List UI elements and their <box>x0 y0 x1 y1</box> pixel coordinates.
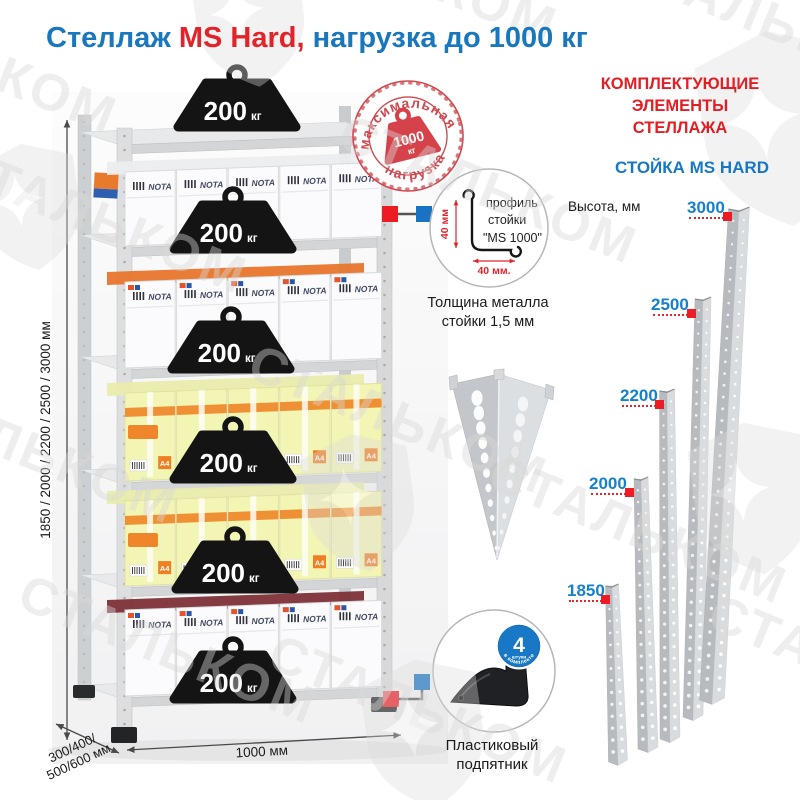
weight-value: 200 <box>200 668 243 698</box>
paper-box-yellow: A4 <box>280 385 330 475</box>
paper-box-white: NOTA <box>280 274 330 362</box>
stand-post <box>634 477 658 753</box>
paper-box-white: NOTA <box>125 170 175 246</box>
rack-illustration: NOTANOTANOTANOTANOTANOTANOTANOTANOTANOTA… <box>0 0 800 800</box>
box-brand-text: NOTA <box>251 177 275 188</box>
paper-box-white: NOTA <box>331 600 381 688</box>
paper-box-yellow: A4 <box>331 383 381 473</box>
paper-box-yellow: A4 <box>280 493 330 580</box>
side-sticker <box>93 172 118 198</box>
weight-value: 200 <box>204 96 247 126</box>
box-size-label: A4 <box>366 451 376 460</box>
badge-number: 4 <box>513 634 525 657</box>
width-dim-text: 1000 мм <box>235 743 288 761</box>
paper-box-white: NOTA <box>280 602 330 690</box>
stand-post <box>606 584 628 765</box>
box-size-label: A4 <box>160 564 170 573</box>
stand-post <box>660 389 681 743</box>
profile-dim-horizontal: 40 мм. <box>477 265 510 277</box>
profile-label-2: стойки <box>488 213 526 227</box>
box-brand-text: NOTA <box>354 283 378 294</box>
paper-box-yellow: A4 <box>331 491 381 578</box>
paper-box-yellow: A4 <box>125 391 175 481</box>
box-brand-text: NOTA <box>354 611 378 622</box>
box-brand-text: NOTA <box>303 175 327 186</box>
box-brand-text: NOTA <box>148 291 172 302</box>
box-size-label: A4 <box>315 558 325 567</box>
badge-4pcs: 4 штуки в комплекте <box>496 623 543 670</box>
box-brand-text: NOTA <box>148 619 172 630</box>
infographic-page: NOTANOTANOTANOTANOTANOTANOTANOTANOTANOTA… <box>0 0 800 800</box>
box-brand-text: NOTA <box>200 179 224 190</box>
plastic-foot-circle: 4 штуки в комплекте <box>433 610 555 732</box>
paper-box-white: NOTA <box>331 272 381 360</box>
paper-box-white: NOTA <box>280 164 330 240</box>
weight-unit: кг <box>247 683 258 695</box>
box-size-label: A4 <box>366 556 376 565</box>
profile-dim-vertical: 40 мм <box>439 209 451 239</box>
weight-value: 200 <box>198 338 241 368</box>
box-size-label: A4 <box>160 459 170 468</box>
box-brand-text: NOTA <box>303 613 327 624</box>
weight-value: 200 <box>200 218 243 248</box>
paper-box-white: NOTA <box>125 280 175 368</box>
profile-label-3: "MS 1000" <box>483 231 542 245</box>
weight-unit: кг <box>247 463 258 475</box>
box-brand-text: NOTA <box>251 615 275 626</box>
paper-box-white: NOTA <box>125 608 175 696</box>
weight-badge: 200кг <box>178 67 296 127</box>
weight-unit: кг <box>249 573 260 585</box>
profile-label-1: профиль <box>486 196 538 210</box>
box-brand-text: NOTA <box>200 289 224 300</box>
box-brand-text: NOTA <box>303 285 327 296</box>
box-size-label: A4 <box>315 453 325 462</box>
weight-unit: кг <box>245 353 256 365</box>
blue-marker <box>416 206 432 222</box>
blue-marker <box>414 674 430 690</box>
red-marker <box>382 206 398 222</box>
profile-detail-circle: 40 мм 40 мм. профиль стойки "MS 1000" <box>430 169 548 287</box>
height-dim-text: 1850 / 2000 / 2200 / 2500 / 3000 мм <box>38 321 53 538</box>
weight-unit: кг <box>247 233 258 245</box>
weight-unit: кг <box>251 111 262 123</box>
box-brand-text: NOTA <box>251 287 275 298</box>
paper-box-yellow: A4 <box>125 499 175 586</box>
weight-value: 200 <box>200 448 243 478</box>
box-brand-text: NOTA <box>200 617 224 628</box>
stand-posts <box>606 207 750 765</box>
red-marker <box>383 691 399 707</box>
box-brand-text: NOTA <box>148 181 172 192</box>
weight-value: 200 <box>202 558 245 588</box>
corner-post-image <box>449 369 554 560</box>
